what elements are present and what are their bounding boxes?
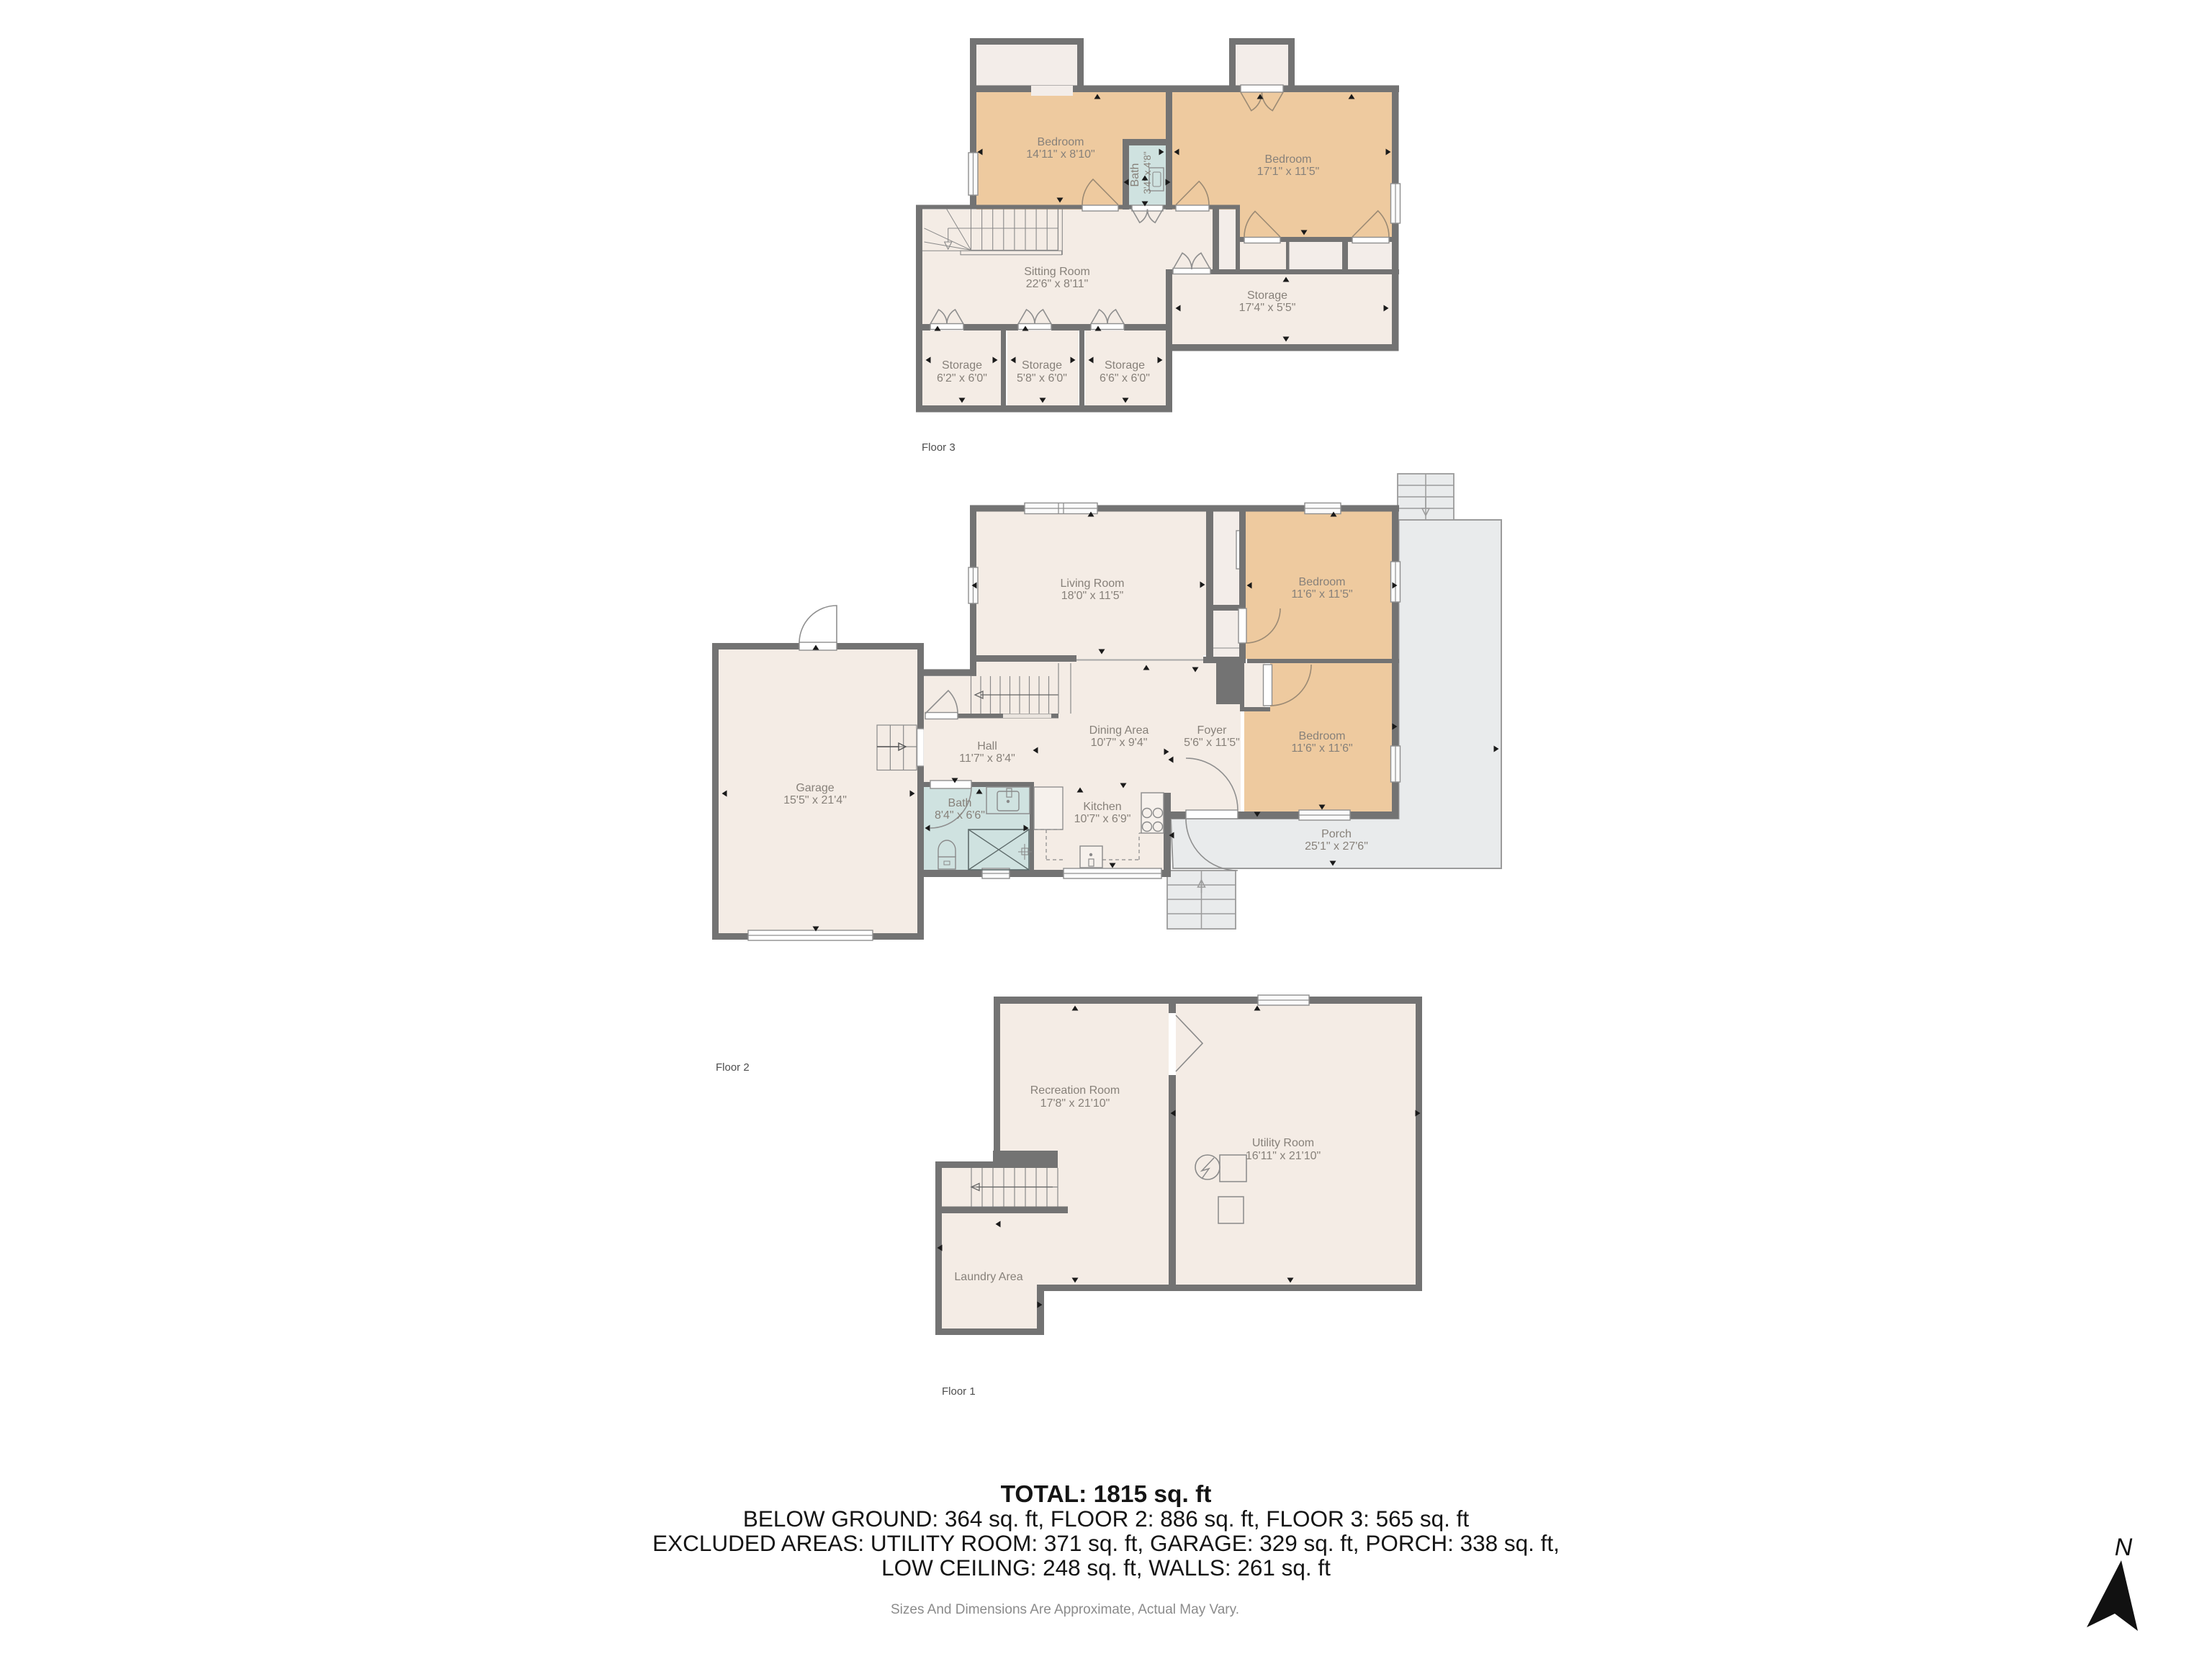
svg-text:Storage: Storage <box>1247 289 1287 302</box>
svg-text:Living Room: Living Room <box>1061 577 1125 590</box>
svg-text:6'6" x 6'0": 6'6" x 6'0" <box>1100 372 1150 385</box>
svg-text:TOTAL: 1815 sq. ft: TOTAL: 1815 sq. ft <box>1001 1481 1212 1508</box>
svg-text:25'1" x 27'6": 25'1" x 27'6" <box>1305 840 1368 853</box>
svg-text:Kitchen: Kitchen <box>1083 801 1121 813</box>
svg-text:Floor 3: Floor 3 <box>922 441 956 454</box>
svg-text:6'2" x 6'0": 6'2" x 6'0" <box>937 372 987 385</box>
svg-text:8'4" x 6'6": 8'4" x 6'6" <box>935 809 985 822</box>
svg-text:N: N <box>2115 1534 2133 1561</box>
svg-text:10'7" x 9'4": 10'7" x 9'4" <box>1091 737 1148 749</box>
svg-text:Floor 1: Floor 1 <box>942 1385 976 1398</box>
svg-text:Foyer: Foyer <box>1197 724 1228 737</box>
svg-text:11'7" x 8'4": 11'7" x 8'4" <box>959 752 1015 765</box>
svg-text:EXCLUDED AREAS: UTILITY ROOM:: EXCLUDED AREAS: UTILITY ROOM: 371 sq. ft… <box>652 1530 1560 1556</box>
svg-text:3'4" x 4'8": 3'4" x 4'8" <box>1142 151 1153 194</box>
svg-text:14'11" x 8'10": 14'11" x 8'10" <box>1026 148 1094 161</box>
svg-text:Hall: Hall <box>977 740 997 752</box>
svg-text:Dining Area: Dining Area <box>1089 724 1149 737</box>
svg-text:15'5" x 21'4": 15'5" x 21'4" <box>783 794 847 806</box>
svg-text:17'8" x 21'10": 17'8" x 21'10" <box>1040 1097 1110 1110</box>
svg-text:5'6" x 11'5": 5'6" x 11'5" <box>1184 737 1240 749</box>
svg-text:11'6" x 11'5": 11'6" x 11'5" <box>1291 588 1352 601</box>
svg-text:Bedroom: Bedroom <box>1038 136 1084 148</box>
svg-text:17'1" x 11'5": 17'1" x 11'5" <box>1257 166 1320 178</box>
svg-text:LOW CEILING: 248 sq. ft, WALLS: LOW CEILING: 248 sq. ft, WALLS: 261 sq. … <box>881 1555 1331 1581</box>
svg-text:11'6" x 11'6": 11'6" x 11'6" <box>1291 742 1352 755</box>
svg-text:5'8" x 6'0": 5'8" x 6'0" <box>1017 372 1067 385</box>
svg-text:16'11" x 21'10": 16'11" x 21'10" <box>1246 1150 1321 1162</box>
svg-text:Utility Room: Utility Room <box>1252 1137 1314 1149</box>
svg-text:Storage: Storage <box>1022 359 1062 372</box>
svg-text:Sizes And Dimensions Are Appro: Sizes And Dimensions Are Approximate, Ac… <box>891 1602 1239 1617</box>
svg-text:Floor 2: Floor 2 <box>716 1061 750 1074</box>
svg-text:Bedroom: Bedroom <box>1299 576 1346 588</box>
svg-text:Storage: Storage <box>942 359 982 372</box>
svg-text:Bedroom: Bedroom <box>1299 730 1346 742</box>
svg-text:22'6" x 8'11": 22'6" x 8'11" <box>1026 278 1089 290</box>
svg-text:Laundry Area: Laundry Area <box>954 1271 1022 1283</box>
svg-text:Sitting Room: Sitting Room <box>1024 266 1090 278</box>
svg-text:Garage: Garage <box>796 782 834 794</box>
svg-text:18'0" x 11'5": 18'0" x 11'5" <box>1061 590 1124 602</box>
svg-text:Bath: Bath <box>1129 163 1141 187</box>
svg-text:Storage: Storage <box>1105 359 1145 372</box>
svg-text:10'7" x 6'9": 10'7" x 6'9" <box>1074 813 1131 825</box>
svg-text:Bath: Bath <box>948 797 972 809</box>
svg-text:BELOW GROUND: 364 sq. ft, FLOO: BELOW GROUND: 364 sq. ft, FLOOR 2: 886 s… <box>743 1506 1470 1532</box>
svg-text:17'4" x 5'5": 17'4" x 5'5" <box>1239 302 1296 314</box>
svg-text:Bedroom: Bedroom <box>1265 153 1312 166</box>
svg-text:Porch: Porch <box>1321 828 1352 840</box>
svg-text:Recreation Room: Recreation Room <box>1030 1084 1120 1097</box>
